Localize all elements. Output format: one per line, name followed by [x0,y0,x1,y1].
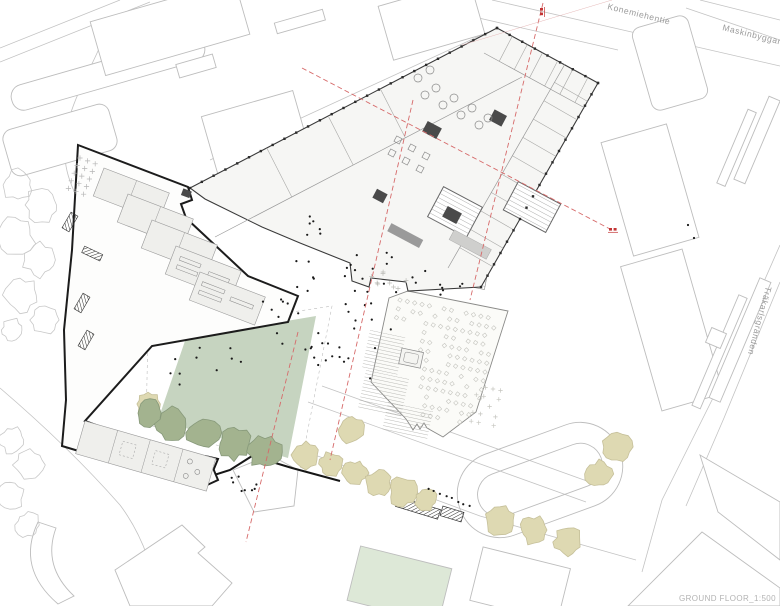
person-dot [354,290,356,292]
person-dot [344,275,346,277]
column-dot [493,263,495,265]
person-dot [312,220,314,222]
column-dot [307,125,309,127]
person-dot [370,302,372,304]
person-dot [287,302,289,304]
person-dot [439,284,441,286]
column-dot [366,94,368,96]
column-dot [295,131,297,133]
column-dot [577,116,579,118]
column-dot [484,33,486,35]
column-dot [283,138,285,140]
person-dot [439,294,441,296]
column-dot [319,119,321,121]
column-dot [378,88,380,90]
person-dot [374,347,376,349]
person-dot [296,286,298,288]
person-dot [231,477,233,479]
column-dot [551,161,553,163]
column-dot [558,150,560,152]
column-dot [390,82,392,84]
column-dot [248,156,250,158]
person-dot [255,483,257,485]
person-dot [350,264,352,266]
column-dot [449,51,451,53]
person-dot [327,342,329,344]
person-dot [391,256,393,258]
column-dot [564,138,566,140]
person-dot [343,361,345,363]
column-dot [546,54,548,56]
column-dot [519,218,521,220]
person-dot [238,476,240,478]
person-dot [390,328,392,330]
floor-plan-drawing: Konemiehentie Maskinbyggarvägen Träkarls… [0,0,780,606]
person-dot [371,319,373,321]
person-dot [216,369,218,371]
person-dot [461,283,463,285]
column-dot [538,184,540,186]
column-dot [571,127,573,129]
person-dot [304,348,306,350]
person-dot [347,357,349,359]
person-dot [459,285,461,287]
person-dot [442,289,444,291]
person-dot [354,269,356,271]
column-dot [584,104,586,106]
path-dot [446,495,448,497]
person-dot [338,346,340,348]
column-dot [236,162,238,164]
column-dot [525,206,527,208]
column-dot [545,172,547,174]
person-dot [311,346,313,348]
person-dot [346,267,348,269]
column-dot [201,181,203,183]
person-dot [372,268,374,270]
person-dot [345,303,347,305]
person-dot [366,291,368,293]
column-dot [584,75,586,77]
person-dot [313,278,315,280]
person-dot [179,383,181,385]
person-dot [354,319,356,321]
person-dot [319,228,321,230]
person-dot [262,301,264,303]
person-dot [317,332,319,334]
person-dot [339,356,341,358]
person-dot [297,312,299,314]
person-dot [307,290,309,292]
column-dot [521,41,523,43]
person-dot [411,276,413,278]
path-dot [462,503,464,505]
column-dot [512,229,514,231]
column-dot [590,93,592,95]
column-dot [534,47,536,49]
person-dot [241,490,243,492]
column-dot [212,174,214,176]
column-dot [425,64,427,66]
person-dot [386,263,388,265]
path-dot [428,488,430,490]
column-dot [486,274,488,276]
column-dot [330,113,332,115]
column-dot [506,240,508,242]
column-dot [413,70,415,72]
person-dot [415,282,417,284]
person-dot [306,234,308,236]
column-dot [508,34,510,36]
person-dot [276,332,278,334]
path-dot [433,490,435,492]
path-dot [439,493,441,495]
column-dot [354,101,356,103]
person-dot [295,260,297,262]
person-dot [331,355,333,357]
person-dot [244,489,246,491]
person-dot [174,358,176,360]
column-dot [532,195,534,197]
person-dot [231,358,233,360]
path-dot [457,501,459,503]
person-dot [383,283,385,285]
person-dot [179,373,181,375]
person-dot [280,298,282,300]
person-dot [317,364,319,366]
column-dot [342,107,344,109]
person-dot [229,347,231,349]
person-dot [240,361,242,363]
person-dot [441,287,443,289]
column-dot [496,27,498,29]
person-dot [361,278,363,280]
path-dot [469,505,471,507]
person-dot [281,343,283,345]
person-dot [232,481,234,483]
column-dot [271,144,273,146]
person-dot [309,215,311,217]
column-dot [437,58,439,60]
person-dot [169,372,171,374]
person-dot [254,488,256,490]
person-dot [321,342,323,344]
person-dot [369,377,371,379]
person-dot [195,357,197,359]
person-dot [325,359,327,361]
person-dot [319,233,321,235]
column-dot [480,286,482,288]
person-dot [282,301,284,303]
column-dot [499,252,501,254]
person-dot [199,347,201,349]
path-dot [451,497,453,499]
column-dot [460,45,462,47]
person-dot [308,261,310,263]
person-dot [424,270,426,272]
person-dot [386,252,388,254]
column-dot [559,61,561,63]
person-dot [313,357,315,359]
column-dot [597,82,599,84]
column-dot [572,68,574,70]
person-dot [347,311,349,313]
person-dot [356,254,358,256]
column-dot [224,168,226,170]
person-dot [353,327,355,329]
person-dot [251,489,253,491]
column-dot [260,150,262,152]
column-dot [401,76,403,78]
person-dot [309,222,311,224]
drawing-title: GROUND FLOOR_1:500 [679,594,776,603]
person-dot [277,316,279,318]
person-dot [271,309,273,311]
site-plan: Konemiehentie Maskinbyggarvägen Träkarls… [0,0,780,606]
person-dot [395,291,397,293]
